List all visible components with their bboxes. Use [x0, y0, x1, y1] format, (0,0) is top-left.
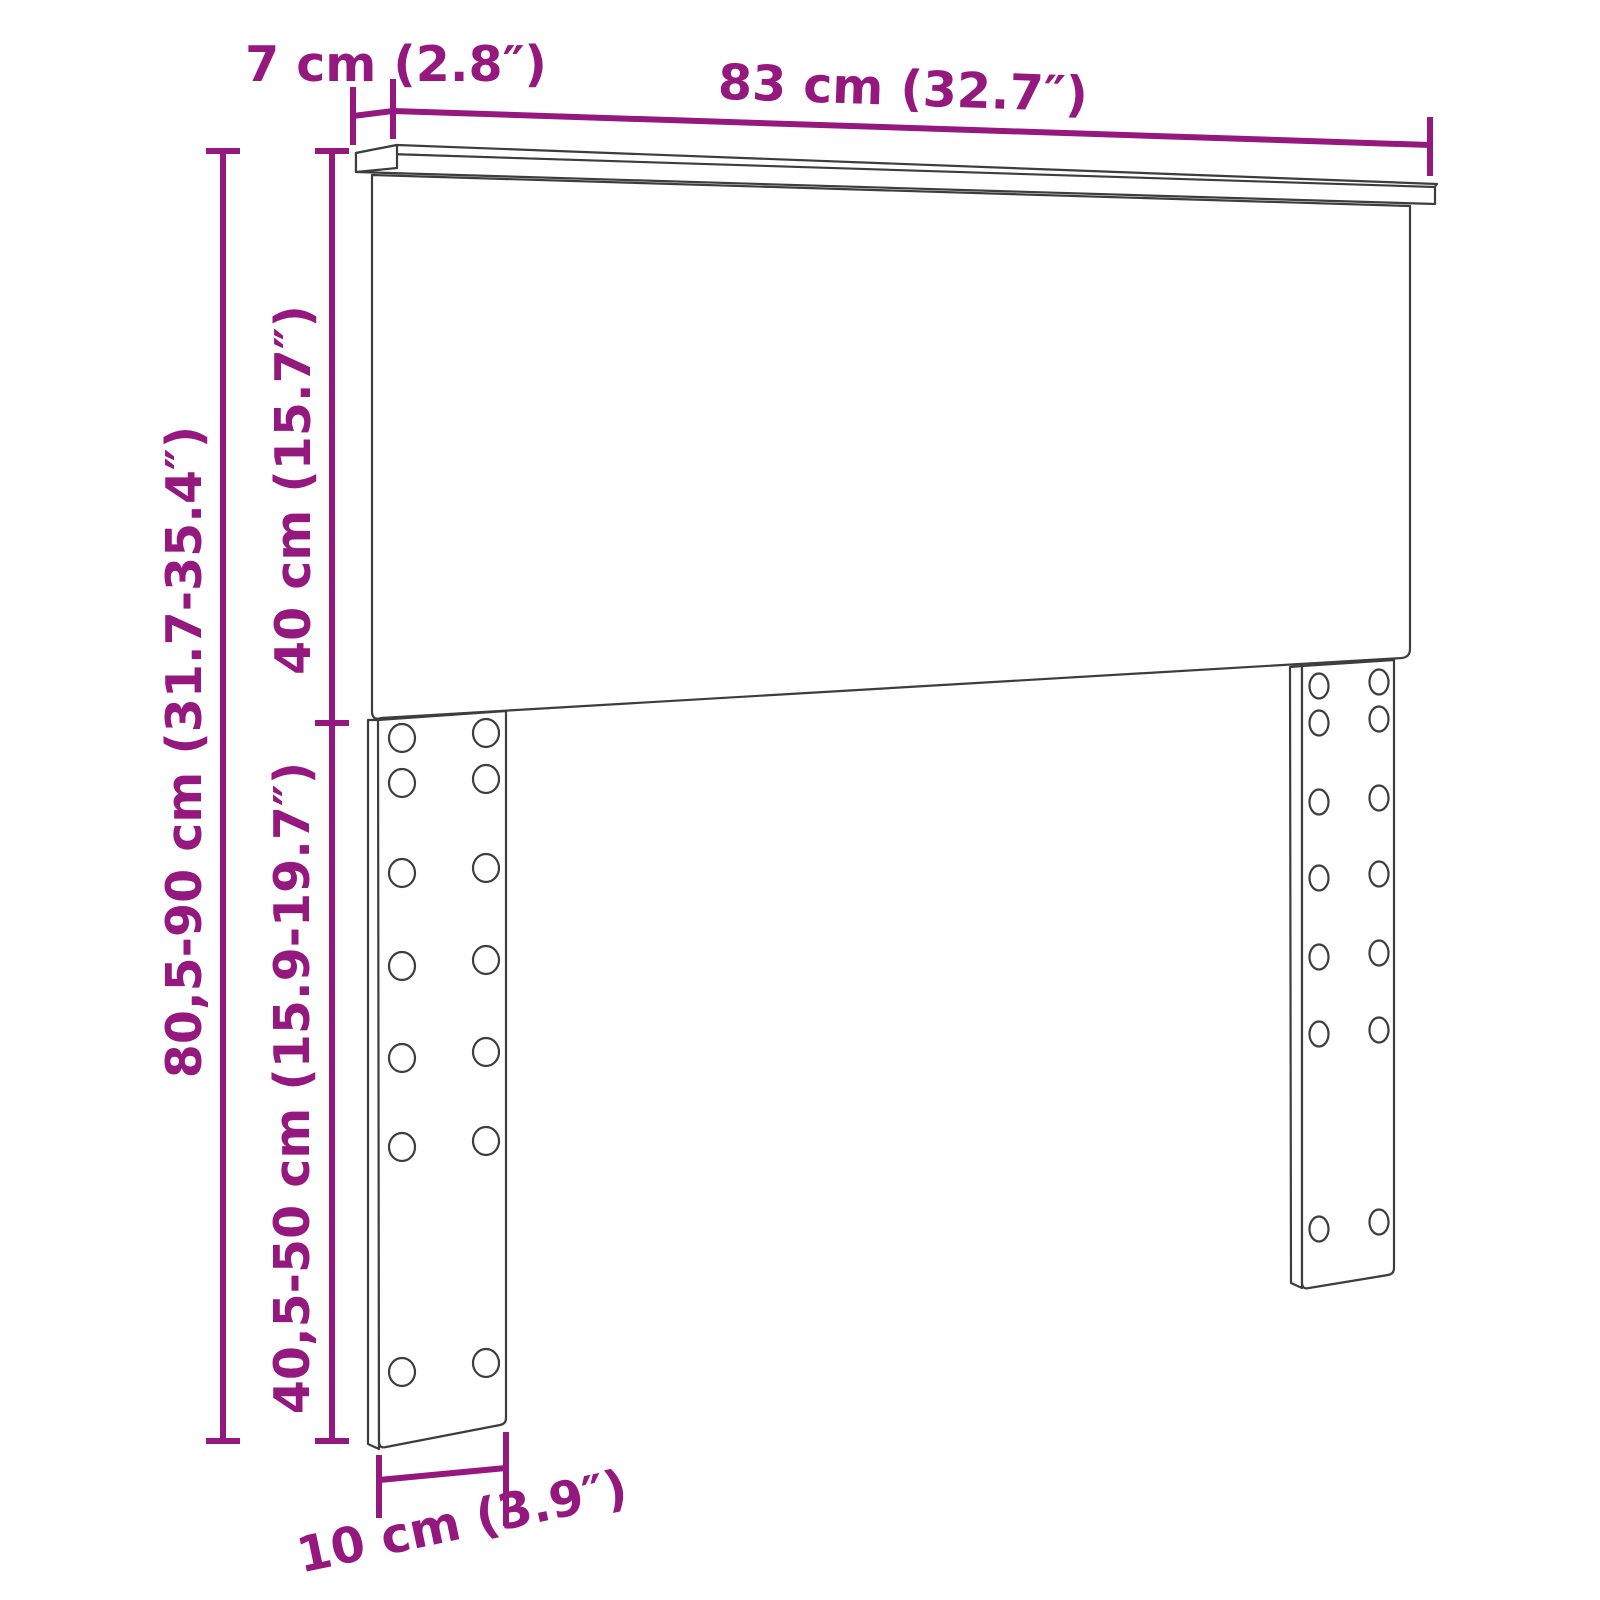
dim-line — [379, 1468, 506, 1480]
diagram-canvas: 7 cm (2.8″) 83 cm (32.7″) 80,5-90 cm (31… — [0, 0, 1600, 1600]
top-shelf-left-face — [356, 145, 397, 172]
dim-label-total-height: 80,5-90 cm (31.7-35.4″) — [156, 426, 213, 1078]
headboard-panel — [372, 175, 1410, 719]
left-leg-front-face — [378, 711, 506, 1447]
dim-label-width: 83 cm (32.7″) — [717, 54, 1089, 124]
dim-leg-width: 10 cm (3.9″) — [292, 1432, 632, 1584]
dim-label-panel-height: 40 cm (15.7″) — [265, 305, 322, 675]
headboard-drawing — [356, 145, 1437, 1449]
dim-label-leg-height: 40,5-50 cm (15.9-19.7″) — [264, 762, 321, 1414]
dim-heights: 40 cm (15.7″) 40,5-50 cm (15.9-19.7″) — [264, 151, 349, 1441]
dimension-diagram: 7 cm (2.8″) 83 cm (32.7″) 80,5-90 cm (31… — [0, 0, 1600, 1600]
dim-label-top-depth: 7 cm (2.8″) — [245, 36, 547, 93]
left-leg — [368, 711, 506, 1449]
right-leg — [1290, 660, 1394, 1288]
dim-label-leg-width: 10 cm (3.9″) — [292, 1459, 632, 1585]
dim-top-depth: 7 cm (2.8″) — [245, 36, 547, 145]
dim-total-height: 80,5-90 cm (31.7-35.4″) — [156, 151, 240, 1441]
right-leg-front-face — [1302, 660, 1394, 1288]
dim-line — [353, 111, 393, 116]
right-leg-side-face — [1290, 666, 1302, 1288]
